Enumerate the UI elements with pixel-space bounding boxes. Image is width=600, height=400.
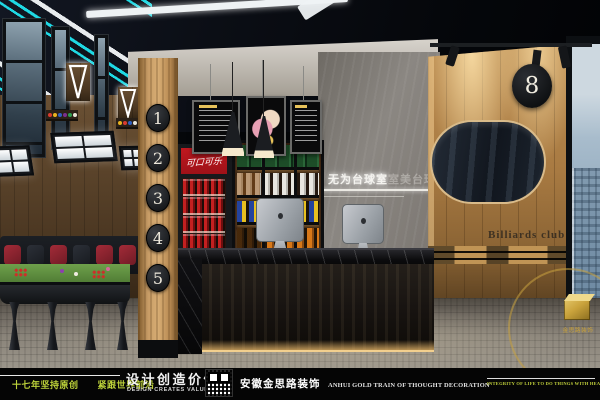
billiards-club-lettering: Billiards club bbox=[488, 229, 565, 241]
billiard-ball bbox=[106, 267, 110, 271]
billiards-club-render: 无为台球室室美台球 Billiards club 可口可 bbox=[0, 0, 600, 400]
table-number-sign: 2 bbox=[146, 144, 170, 172]
caption-divider-left bbox=[0, 375, 120, 376]
pendant-cord bbox=[232, 62, 233, 114]
drink-cooler: 可口可乐 bbox=[178, 144, 232, 258]
table-number-sign: 4 bbox=[146, 224, 170, 252]
pill-shaped-mirror bbox=[430, 120, 546, 204]
room-number-sign: 8 bbox=[512, 64, 552, 108]
company-name-chinese: 安徽金思路装饰 bbox=[240, 376, 321, 391]
cooler-brand-text: 可口可乐 bbox=[186, 153, 223, 169]
triangle-wall-lamp bbox=[66, 63, 90, 101]
reception-monitor bbox=[342, 204, 384, 244]
triangle-wall-lamp bbox=[118, 87, 138, 119]
wall-sign: 无为台球室室美台球 bbox=[322, 171, 436, 187]
caption-divider-right bbox=[487, 378, 595, 379]
window bbox=[3, 19, 45, 157]
watermark-logo-icon bbox=[564, 300, 590, 320]
pendant-cord bbox=[263, 60, 264, 118]
wall-sign-underline-2 bbox=[322, 196, 404, 197]
ball-rack bbox=[46, 110, 78, 121]
cooler-door bbox=[182, 178, 226, 252]
hanging-wire bbox=[210, 64, 211, 102]
table-light-panel bbox=[50, 131, 118, 163]
tagline-english: DESIGN CREATES VALUE bbox=[127, 386, 209, 392]
reception-desk-front bbox=[176, 264, 434, 352]
hanging-wire bbox=[303, 66, 304, 102]
menu-header bbox=[295, 105, 306, 108]
menu-header bbox=[199, 105, 217, 108]
billiard-table-body bbox=[0, 282, 130, 304]
reception-monitor bbox=[256, 198, 304, 242]
racked-red-balls bbox=[92, 270, 106, 279]
reception-desk-side bbox=[176, 258, 202, 354]
shelf-row-cans bbox=[237, 173, 319, 198]
window bbox=[95, 35, 108, 143]
wall-sign-underline bbox=[322, 189, 436, 191]
table-light-panel bbox=[0, 145, 34, 177]
company-name: 安徽金思路装饰 ANHUI GOLD TRAIN OF THOUGHT DECO… bbox=[240, 376, 503, 391]
menu-board bbox=[290, 100, 322, 154]
caption-bar: 十七年坚持原创 紧跟世界前沿 设计创造价值 DESIGN CREATES VAL… bbox=[0, 368, 600, 400]
table-number-sign: 3 bbox=[146, 184, 170, 212]
cue-ball bbox=[74, 272, 78, 276]
billiard-ball bbox=[60, 269, 64, 273]
company-name-english: ANHUI GOLD TRAIN OF THOUGHT DECORATION bbox=[328, 382, 490, 389]
qr-code bbox=[206, 370, 232, 396]
table-number-sign: 1 bbox=[146, 104, 170, 132]
interior-photo: 无为台球室室美台球 Billiards club 可口可 bbox=[0, 0, 600, 368]
table-number-sign: 5 bbox=[146, 264, 170, 292]
watermark-text: 金思路装饰 bbox=[559, 326, 596, 334]
slogan-right: INTEGRITY OF LIFE TO DO THINGS WITH HEAR… bbox=[487, 381, 597, 386]
room-number-text: 8 bbox=[525, 73, 540, 99]
menu-text-lines bbox=[295, 110, 316, 145]
wood-slat-band bbox=[428, 246, 574, 264]
wall-sign-bright-text: 无为台球室 bbox=[328, 174, 388, 186]
racked-red-balls bbox=[14, 268, 28, 277]
